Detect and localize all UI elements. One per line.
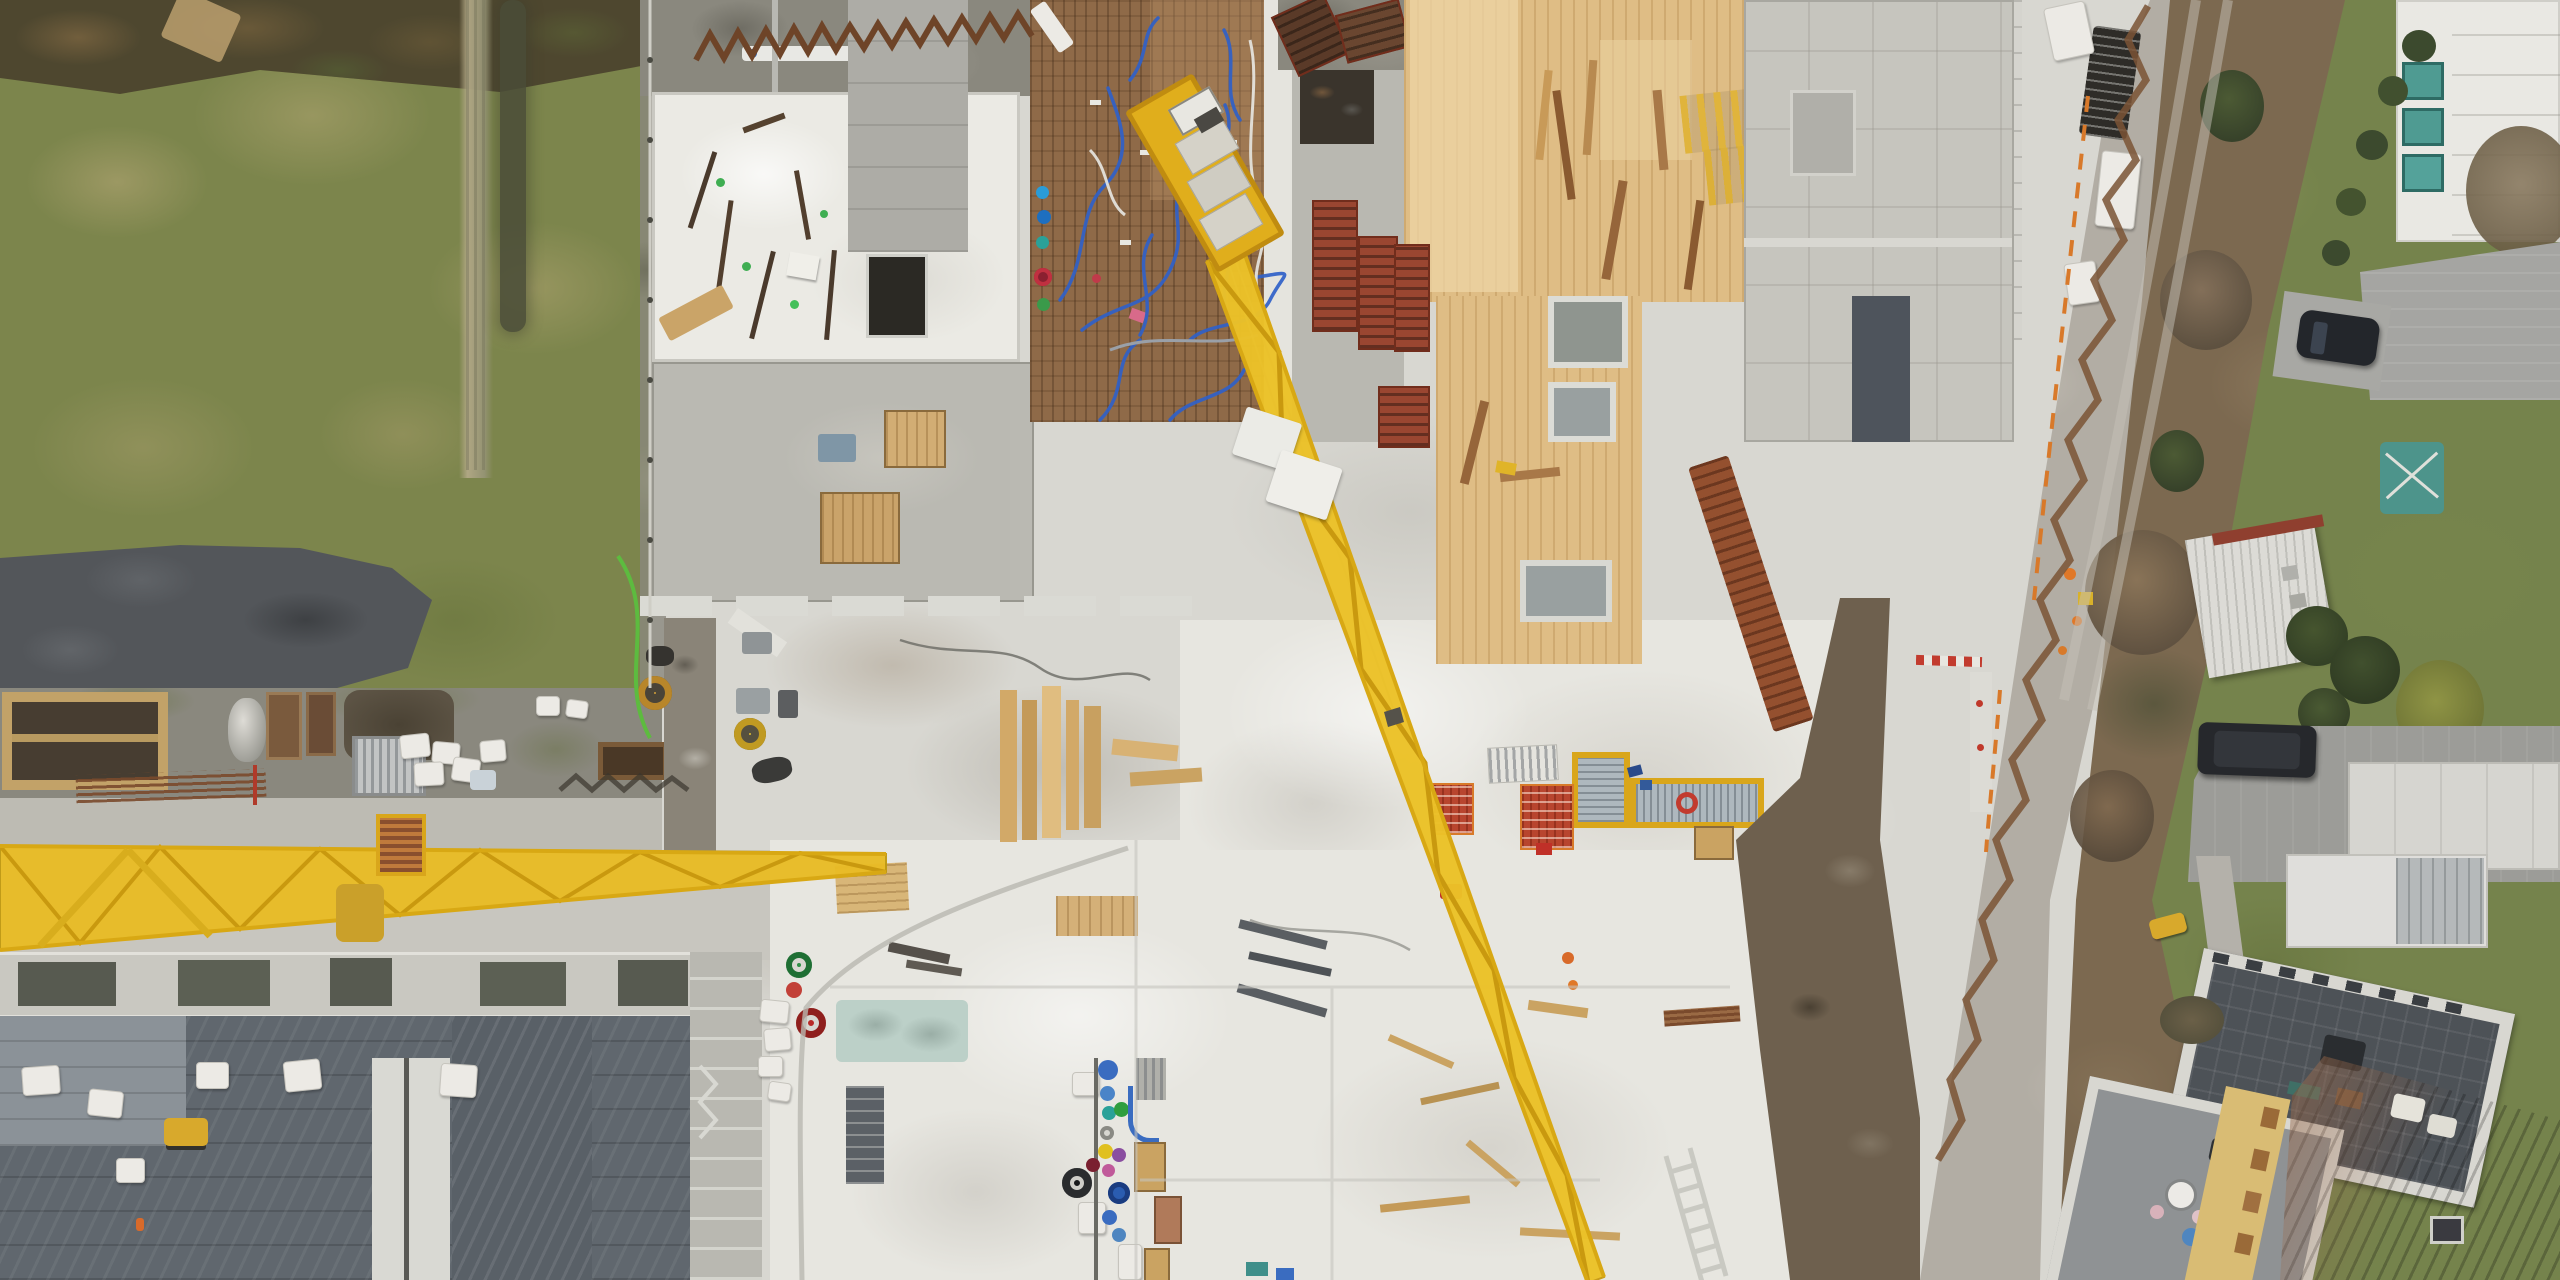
field-path-lines [466, 0, 486, 470]
wood-crate-small [1694, 826, 1734, 860]
concrete-band [0, 798, 662, 856]
teal-window [2402, 108, 2444, 146]
red-toolbox [1440, 884, 1462, 899]
bucket [1108, 1182, 1130, 1204]
green-strap [790, 300, 799, 309]
bucket [1112, 1148, 1126, 1162]
parapet-room [618, 960, 688, 1006]
brick-pallet [1520, 784, 1574, 850]
winch-housing [376, 814, 426, 876]
orange-cone [2064, 568, 2076, 580]
wood-deck-light-panel [1600, 40, 1692, 160]
white-ribbed-stack [1487, 744, 1559, 784]
insulation-bundle [21, 1065, 61, 1097]
boom-carriage [336, 884, 384, 942]
bucket [1100, 1126, 1114, 1140]
pole [772, 0, 778, 98]
insulation-bundle [282, 1058, 322, 1093]
dark-room [1852, 296, 1910, 442]
bucket [1086, 1158, 1100, 1172]
blue-bit [1276, 1268, 1294, 1280]
bucket [1098, 1144, 1113, 1159]
insulation-bundle [439, 1063, 478, 1099]
red-formwork-stack [1358, 236, 1398, 350]
hedge-bush-icon [2322, 240, 2350, 266]
lumber-stack [1066, 700, 1079, 830]
red-coil [796, 1008, 826, 1038]
red-box [1536, 843, 1552, 855]
deck-gray-void [1548, 382, 1616, 442]
deck-gray-void [1520, 560, 1612, 622]
scaffold-stair-strip [690, 952, 762, 1280]
bucket [1102, 1210, 1117, 1225]
aerial-photo [0, 0, 2560, 1280]
frame-cross-beam [12, 734, 158, 742]
cable-spool [1034, 268, 1052, 286]
red-formwork-stack [1378, 386, 1430, 448]
red-mark [1977, 744, 1984, 751]
lumber-stack [1042, 686, 1061, 838]
tan-platform [1056, 896, 1138, 936]
roof-wall-seam [404, 1058, 409, 1280]
bucket [1102, 1164, 1115, 1177]
dark-bush-icon [2200, 70, 2264, 142]
hedge-bush-icon [2336, 188, 2366, 216]
patio-chair [2150, 1205, 2164, 1219]
tire-wheel [1062, 1168, 1092, 1198]
yellow-tub [734, 718, 766, 750]
white-bundle [536, 696, 560, 716]
white-bundle [565, 699, 589, 720]
white-support [1120, 240, 1131, 245]
lumber-stack [1084, 706, 1101, 828]
orange-cone [2072, 616, 2082, 626]
teal-panels [836, 1000, 968, 1062]
insulation-bundle [116, 1158, 145, 1183]
pallet-blue [470, 770, 496, 790]
roof-skylight [2430, 1216, 2464, 1244]
green-strap [742, 262, 751, 271]
brown-shed [266, 692, 302, 760]
deck-gray-void [1548, 296, 1628, 368]
hedge-bush-icon [2356, 130, 2388, 160]
white-sack [758, 1056, 783, 1077]
roof-hatch-section [452, 1016, 592, 1280]
gray-ribbed-box [1136, 1058, 1166, 1100]
tree-crown-icon [2085, 530, 2200, 655]
dark-bush-icon [2150, 430, 2204, 492]
hedge-bush-icon [2378, 76, 2408, 106]
mini-loader [164, 1118, 208, 1146]
wrapped-pallet [413, 761, 444, 787]
hedge-strip [500, 0, 526, 332]
patio-table [2168, 1182, 2194, 1208]
orange-cone [2058, 646, 2067, 655]
white-cap-line [1744, 238, 2012, 247]
crane-hook-panel [786, 252, 820, 281]
parapet-room [330, 958, 392, 1006]
bucket [1114, 1102, 1129, 1117]
green-strap [820, 210, 828, 218]
bucket [1100, 1086, 1115, 1101]
site-container-vertical [1572, 752, 1630, 828]
van-roof [2213, 731, 2300, 770]
teal-bit [1246, 1262, 1268, 1276]
wood-crate [1144, 1248, 1170, 1280]
tree-crown-icon [2160, 250, 2252, 350]
wood-crate [1134, 1142, 1166, 1192]
bucket [1098, 1060, 1118, 1080]
edge-form-strip [1970, 672, 1992, 812]
rusty-trough [598, 742, 668, 780]
flower-bed [2160, 996, 2224, 1044]
slab-b [652, 362, 1034, 602]
white-sack [767, 1080, 792, 1102]
worker-orange-vest [136, 1218, 144, 1231]
room-medium [1790, 90, 1856, 176]
wood-crate [1154, 1196, 1182, 1244]
red-formwork-stack [1394, 244, 1430, 352]
white-sack [759, 999, 790, 1025]
white-support [1090, 100, 1101, 105]
white-crate [1118, 1244, 1142, 1280]
blue-equipment [1640, 780, 1652, 790]
cable-spool [1036, 236, 1049, 249]
blue-clamp [748, 49, 757, 58]
blue-panel [818, 434, 856, 462]
orange-item [1568, 980, 1578, 990]
red-emblem [1676, 792, 1698, 814]
tarp-bundle [2063, 260, 2101, 306]
red-mark [1976, 700, 1983, 707]
lumber-stack [1022, 700, 1037, 840]
parapet-room [18, 962, 116, 1006]
orange-item [1562, 952, 1574, 964]
brown-shed [306, 692, 336, 756]
stair-core [848, 0, 968, 252]
teal-window [2402, 154, 2444, 192]
cable-spool [1037, 298, 1050, 311]
red-coil-small [786, 982, 802, 998]
insulation-bundle [87, 1088, 125, 1119]
dark-panel-stack [846, 1086, 884, 1184]
wrapped-pallet [399, 732, 431, 759]
equipment-box [742, 632, 772, 654]
equipment-box [778, 690, 798, 718]
shed-hatch [2281, 565, 2299, 582]
parapet-room [178, 960, 270, 1006]
tan-stack [835, 862, 909, 914]
teal-window [2402, 62, 2444, 100]
equipment-box [736, 688, 770, 714]
dark-tub [646, 646, 674, 666]
cable-spool [1037, 210, 1051, 224]
shaft-opening [866, 254, 928, 338]
hedge-bush-icon [2402, 30, 2436, 62]
metal-roof-panels [2396, 858, 2484, 944]
white-caps-row [640, 596, 1200, 616]
tree-crown-icon [2070, 770, 2154, 862]
cable-spool [1036, 186, 1049, 199]
formwork-table [884, 410, 946, 468]
white-sack [763, 1027, 792, 1052]
red-formwork-stack [1312, 200, 1358, 332]
wrapped-pallet [479, 739, 507, 763]
red-dot [1092, 274, 1101, 283]
storage-tank [228, 698, 266, 762]
yellow-box [2078, 592, 2093, 605]
tarp-bundle [2094, 150, 2142, 230]
lumber-stack [1000, 690, 1017, 842]
parapet-room [480, 962, 566, 1006]
bucket [1112, 1228, 1126, 1242]
green-strap [716, 178, 725, 187]
yellow-tub [638, 676, 672, 710]
shed-hatch [2289, 593, 2307, 610]
green-coil [786, 952, 812, 978]
insulation-bundle [196, 1062, 229, 1089]
formwork-table [820, 492, 900, 564]
brick-pallet [1432, 783, 1474, 835]
